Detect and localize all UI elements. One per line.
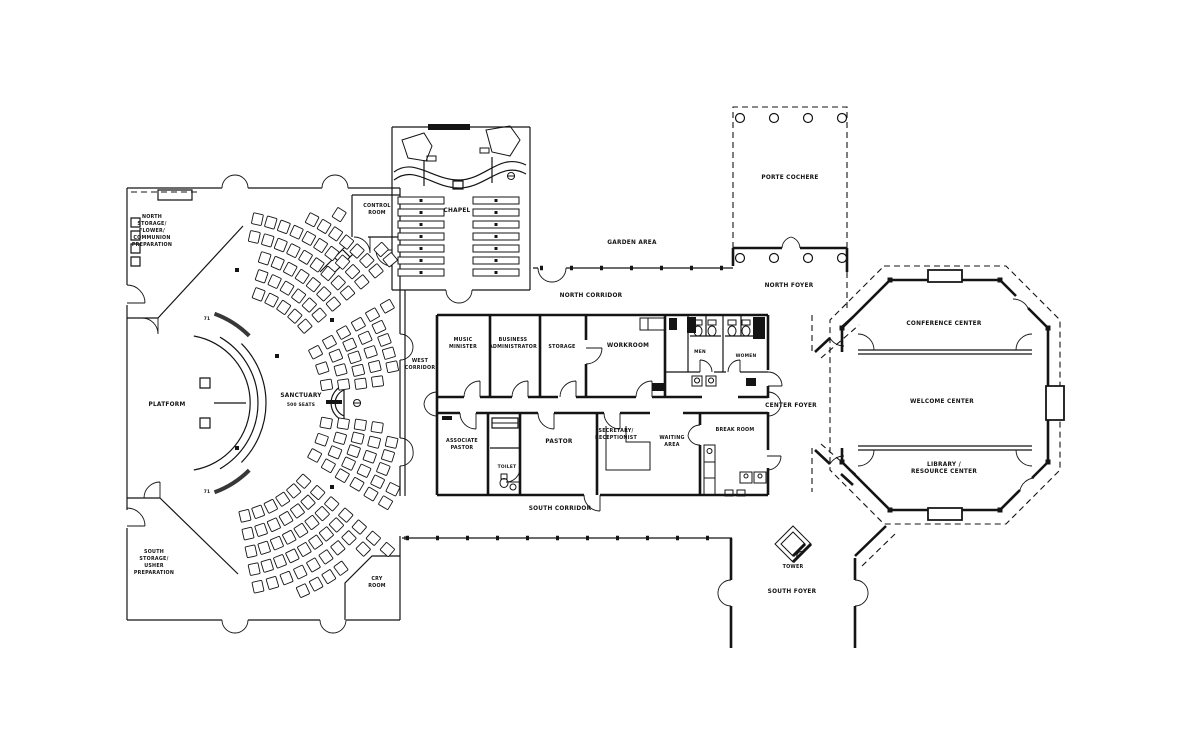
- column: [770, 114, 779, 123]
- sanctuary-seat: [305, 213, 319, 227]
- label-music-minister: MUSICMINISTER: [449, 337, 477, 350]
- sanctuary-seat: [380, 542, 395, 557]
- pew-marker: [420, 247, 423, 250]
- sanctuary-seat: [322, 569, 336, 584]
- label-conference-center: CONFERENCE CENTER: [906, 321, 981, 327]
- column: [838, 254, 847, 263]
- sanctuary-seat: [290, 225, 304, 239]
- sanctuary-seat: [319, 527, 334, 542]
- sanctuary-seat: [313, 238, 327, 253]
- sanctuary-seat: [319, 550, 334, 565]
- sanctuary-seat: [286, 243, 300, 257]
- sanctuary-seat: [296, 474, 311, 489]
- label-garden-area: GARDEN AREA: [607, 240, 657, 246]
- sanctuary-seat: [328, 446, 342, 459]
- sanctuary-seat: [376, 462, 390, 475]
- sanctuary-seat: [248, 230, 260, 243]
- sanctuary-seat: [283, 262, 297, 276]
- sanctuary-seat: [315, 433, 329, 446]
- sanctuary-seat: [270, 536, 283, 550]
- sanctuary-seat: [321, 266, 336, 281]
- sanctuary-seat: [368, 436, 381, 448]
- pew-marker: [495, 223, 498, 226]
- sanctuary-seat: [265, 293, 279, 307]
- tower-shape: [775, 526, 811, 562]
- pew-marker: [420, 211, 423, 214]
- pew-marker: [420, 271, 423, 274]
- sanctuary-seat: [264, 216, 277, 229]
- sanctuary-seat: [316, 362, 330, 375]
- sanctuary-seat: [307, 448, 321, 462]
- sanctuary-seat: [287, 309, 302, 324]
- sanctuary-seat: [336, 325, 350, 339]
- column: [770, 254, 779, 263]
- sanctuary-seat: [364, 487, 379, 501]
- sanctuary-seat: [325, 246, 340, 261]
- pew-marker: [420, 259, 423, 262]
- label-sanctuary: SANCTUARY: [280, 393, 322, 399]
- sanctuary-seat: [271, 256, 285, 270]
- sanctuary-seat: [322, 335, 336, 349]
- section-marker: 71: [204, 489, 211, 495]
- pew-marker: [495, 247, 498, 250]
- sanctuary-seat: [258, 541, 271, 555]
- sanctuary-seat: [335, 469, 350, 483]
- sanctuary-seat: [350, 244, 365, 259]
- sanctuary-seat: [310, 485, 325, 500]
- sanctuary-seat: [365, 308, 380, 322]
- label-library: LIBRARY /RESOURCE CENTER: [911, 462, 977, 475]
- sanctuary-seat: [290, 504, 305, 519]
- porte-cochere-columns: [736, 114, 847, 263]
- label-south-storage: SOUTHSTORAGE/USHERPREPARATION: [134, 549, 174, 576]
- sanctuary-seat: [334, 561, 349, 576]
- office-octagon-walls: [437, 248, 1048, 648]
- sanctuary-seat: [382, 347, 395, 360]
- sanctuary-seat: [293, 565, 307, 579]
- sanctuary-seat: [280, 571, 293, 585]
- label-north-corridor: NORTH CORRIDOR: [560, 293, 623, 299]
- label-south-foyer: SOUTH FOYER: [768, 589, 817, 595]
- sanctuary-seat: [333, 432, 346, 445]
- sanctuary-seat: [364, 345, 378, 358]
- label-men: MEN: [694, 349, 706, 355]
- label-storage: STORAGE: [548, 344, 575, 350]
- pew-marker: [420, 223, 423, 226]
- sanctuary-seat: [320, 379, 332, 391]
- sanctuary-seat: [291, 289, 306, 304]
- sanctuary-seat: [301, 495, 316, 510]
- sanctuary-seat: [370, 475, 384, 489]
- sanctuary-seat: [245, 545, 257, 558]
- sanctuary-seat: [251, 213, 263, 226]
- sanctuary-seat: [286, 483, 301, 498]
- sanctuary-seat: [354, 275, 369, 290]
- dashed-roof-lines: [131, 107, 1060, 566]
- sanctuary-seat: [324, 496, 339, 511]
- sanctuary-seat: [308, 345, 322, 359]
- sanctuary-seat: [317, 219, 331, 234]
- sanctuary-seat: [359, 253, 374, 268]
- sanctuary-seat: [321, 459, 336, 473]
- sanctuary-seat: [274, 238, 287, 252]
- sanctuary-seat: [329, 518, 344, 533]
- sanctuary-seat: [385, 436, 398, 448]
- label-waiting-area: WAITINGAREA: [659, 435, 684, 448]
- sanctuary-seat: [326, 297, 341, 312]
- sanctuary-seat: [355, 378, 367, 389]
- sanctuary-seat: [351, 317, 365, 331]
- column: [736, 114, 745, 123]
- sanctuary-seat: [277, 220, 290, 234]
- column: [736, 254, 745, 263]
- sanctuary-seat: [352, 520, 367, 535]
- sanctuary-seat: [347, 445, 361, 458]
- sanctuary-seat: [366, 531, 381, 546]
- sanctuary-seat: [255, 269, 268, 283]
- label-porte-cochere: PORTE COCHERE: [761, 175, 818, 181]
- label-west-corridor: WESTCORRIDOR: [405, 358, 436, 371]
- sanctuary-seat: [302, 231, 316, 245]
- label-tower: TOWER: [783, 564, 804, 570]
- sanctuary-seat: [350, 477, 365, 491]
- label-workroom: WORKROOM: [607, 343, 649, 349]
- sanctuary-seat: [337, 418, 349, 430]
- sanctuary-seat: [315, 506, 330, 521]
- sanctuary-seat: [297, 319, 312, 334]
- label-cry-room: CRYROOM: [368, 576, 386, 589]
- sanctuary-seat: [273, 554, 286, 568]
- sanctuary-seat: [252, 580, 264, 593]
- column: [838, 114, 847, 123]
- sanctuary-seat: [282, 530, 296, 544]
- label-control-room: CONTROLROOM: [363, 203, 390, 216]
- label-break-room: BREAK ROOM: [716, 427, 755, 433]
- sanctuary-seat: [335, 255, 350, 270]
- sanctuary-seat: [306, 558, 320, 573]
- label-south-corridor: SOUTH CORRIDOR: [529, 506, 592, 512]
- sanctuary-seat: [276, 300, 290, 315]
- sanctuary-seat: [357, 464, 371, 478]
- sanctuary-seat: [371, 422, 383, 434]
- pew-marker: [495, 271, 498, 274]
- label-associate-pastor: ASSOCIATEPASTOR: [446, 438, 478, 451]
- sanctuary-seat: [351, 432, 364, 444]
- sanctuary-seat: [239, 509, 251, 522]
- label-north-foyer: NORTH FOYER: [765, 283, 814, 289]
- pew-marker: [420, 235, 423, 238]
- sanctuary-seat: [258, 252, 271, 266]
- sanctuary-seat: [331, 275, 346, 290]
- sanctuary-seat: [358, 331, 372, 345]
- pew-marker: [495, 199, 498, 202]
- sanctuary-seat: [264, 499, 278, 513]
- label-secretary: SECRETARY/RECEPTIONIST: [595, 428, 637, 441]
- sanctuary-seat: [312, 308, 327, 323]
- sanctuary-seat: [261, 234, 274, 247]
- pew-marker: [420, 199, 423, 202]
- sanctuary-seat: [309, 577, 323, 591]
- sanctuary-seat: [268, 274, 282, 288]
- label-toilet: TOILET: [498, 464, 517, 470]
- label-sanctuary-note: 500 SEATS: [287, 402, 315, 408]
- column: [804, 114, 813, 123]
- sanctuary-seat: [386, 482, 400, 496]
- floor-plan-drawing: NORTHSTORAGE/FLOWER/COMMUNIONPREPARATION…: [0, 0, 1182, 737]
- floor-plan-page: NORTHSTORAGE/FLOWER/COMMUNIONPREPARATION…: [0, 0, 1182, 737]
- sanctuary-seat: [380, 299, 395, 313]
- colonnade-posts: [406, 268, 733, 538]
- sanctuary-seat: [342, 530, 357, 545]
- octagon-alcoves: [928, 270, 1064, 520]
- sanctuary-seat: [280, 281, 294, 296]
- sanctuary-seat: [285, 549, 299, 563]
- sanctuary-seat: [345, 264, 360, 279]
- column: [804, 254, 813, 263]
- sanctuary-seat: [320, 417, 333, 429]
- sanctuary-seat: [337, 379, 349, 390]
- pew-marker: [495, 259, 498, 262]
- sanctuary-seat: [316, 286, 331, 301]
- sanctuary-seat: [340, 286, 355, 301]
- sanctuary-seat: [352, 364, 365, 376]
- sanctuary-seat: [297, 542, 311, 557]
- pew-marker: [495, 235, 498, 238]
- sanctuary-seat: [267, 518, 281, 532]
- sanctuary-seat: [276, 492, 290, 507]
- label-center-foyer: CENTER FOYER: [765, 403, 817, 409]
- sanctuary-seat: [381, 449, 394, 462]
- sanctuary-seating: [239, 207, 400, 597]
- sanctuary-seat: [356, 542, 371, 557]
- sanctuary-seat: [363, 450, 377, 463]
- label-chapel: CHAPEL: [444, 208, 471, 214]
- sanctuary-seat: [368, 360, 381, 372]
- sanctuary-seat: [294, 523, 308, 538]
- sanctuary-seat: [378, 496, 393, 510]
- sanctuary-seat: [369, 263, 384, 278]
- sanctuary-seat: [331, 540, 346, 555]
- label-women: WOMEN: [736, 353, 757, 359]
- sanctuary-seat: [371, 376, 383, 387]
- sanctuary-seat: [242, 527, 254, 540]
- tower-thick-edge: [793, 544, 811, 562]
- sanctuary-seat: [378, 333, 392, 346]
- sanctuary-seat: [342, 457, 356, 471]
- label-business-admin: BUSINESSADMINISTRATOR: [489, 337, 537, 350]
- sanctuary-seat: [328, 227, 342, 242]
- sanctuary-seat: [386, 361, 399, 373]
- sanctuary-seat: [279, 511, 293, 526]
- label-pastor: PASTOR: [545, 439, 573, 445]
- sanctuary-seat: [334, 364, 347, 377]
- sanctuary-seat: [348, 351, 362, 364]
- sanctuary-seat: [305, 515, 320, 530]
- label-platform: PLATFORM: [148, 402, 185, 408]
- sanctuary-seat: [332, 207, 346, 222]
- sanctuary-seat: [372, 320, 386, 334]
- sanctuary-seat: [343, 338, 357, 352]
- sanctuary-seat: [302, 298, 317, 313]
- sanctuary-seat: [306, 277, 321, 292]
- sanctuary-seat: [329, 349, 343, 362]
- sanctuary-seat: [261, 559, 274, 572]
- pew-marker: [495, 211, 498, 214]
- label-welcome-center: WELCOME CENTER: [910, 399, 974, 405]
- sanctuary-seat: [374, 242, 389, 257]
- sanctuary-seat: [354, 419, 366, 431]
- sanctuary-seat: [296, 584, 310, 598]
- sanctuary-seat: [255, 523, 268, 537]
- sanctuary-seat: [338, 508, 353, 523]
- sanctuary-seat: [248, 563, 260, 576]
- sanctuary-seat: [252, 287, 265, 301]
- section-marker: 71: [204, 316, 211, 322]
- sanctuary-seat: [298, 250, 312, 265]
- sanctuary-seat: [252, 505, 265, 519]
- sanctuary-seat: [308, 535, 323, 550]
- sanctuary-seat: [266, 576, 279, 589]
- sanctuary-seat: [295, 269, 309, 284]
